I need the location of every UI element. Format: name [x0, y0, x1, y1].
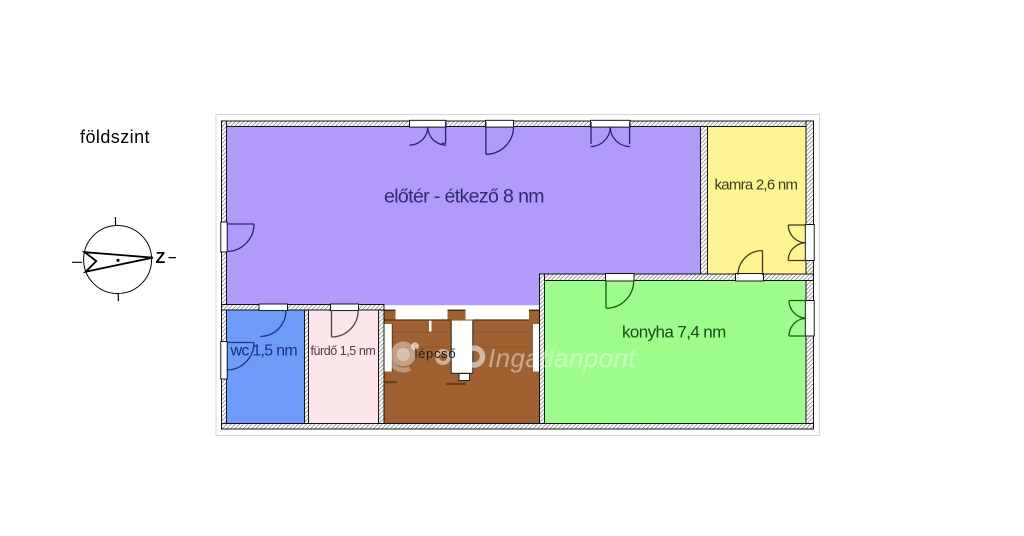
- svg-text:fürdő 1,5 nm: fürdő 1,5 nm: [311, 344, 376, 358]
- svg-text:földszint: földszint: [80, 127, 150, 147]
- svg-text:lépcső: lépcső: [415, 346, 457, 361]
- svg-text:wc 1,5 nm: wc 1,5 nm: [230, 343, 298, 360]
- svg-text:konyha 7,4 nm: konyha 7,4 nm: [622, 323, 726, 342]
- svg-text:Z: Z: [156, 250, 166, 267]
- svg-text:előtér - étkező 8 nm: előtér - étkező 8 nm: [384, 186, 544, 208]
- svg-text:Ingatlanpont: Ingatlanpont: [488, 343, 637, 373]
- svg-text:kamra 2,6 nm: kamra 2,6 nm: [715, 176, 798, 193]
